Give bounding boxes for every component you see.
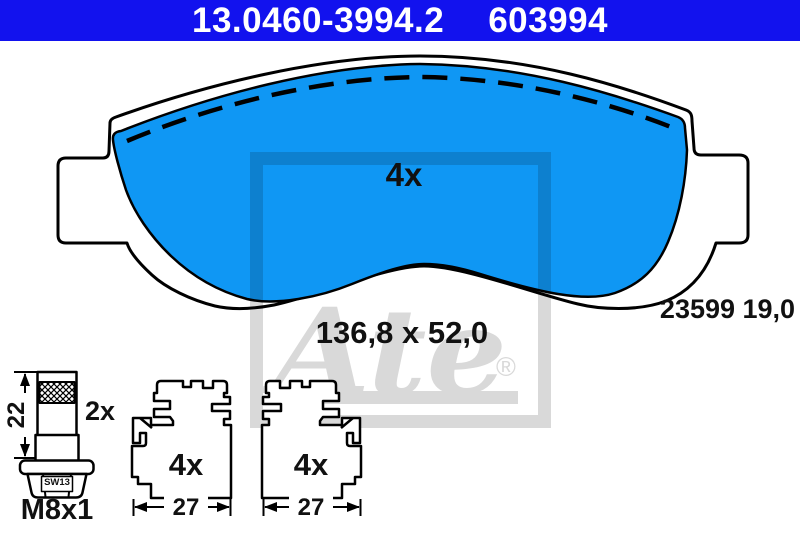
arrowhead-left xyxy=(264,502,277,512)
clip-right-quantity-label: 4x xyxy=(281,449,341,482)
clip-left-quantity-label: 4x xyxy=(156,449,216,482)
arrowhead-up xyxy=(20,373,30,386)
pad-quantity-label: 4x xyxy=(354,158,454,193)
bolt-thread-label: M8x1 xyxy=(12,495,102,525)
arrowhead-left xyxy=(134,502,147,512)
arrowhead-right xyxy=(217,502,230,512)
arrowhead-right xyxy=(347,502,360,512)
hardware-drawings xyxy=(0,0,800,533)
bolt-length-label: 22 xyxy=(4,393,28,437)
arrowhead-down xyxy=(20,444,30,457)
bolt-flange xyxy=(20,461,94,475)
bolt-quantity-label: 2x xyxy=(80,397,120,425)
bolt-wrench-size-label: SW13 xyxy=(41,478,73,488)
pad-reference-label: 23599 19,0 xyxy=(645,295,800,323)
bolt-knurl xyxy=(40,382,75,403)
pad-dimensions-label: 136,8 x 52,0 xyxy=(277,317,527,350)
technical-drawing-page: 13.0460-3994.2 603994 Ate ® xyxy=(0,0,800,533)
clip-right-width-label: 27 xyxy=(289,495,333,520)
bolt-shank-shoulder xyxy=(36,435,79,462)
clip-left-width-label: 27 xyxy=(164,495,208,520)
